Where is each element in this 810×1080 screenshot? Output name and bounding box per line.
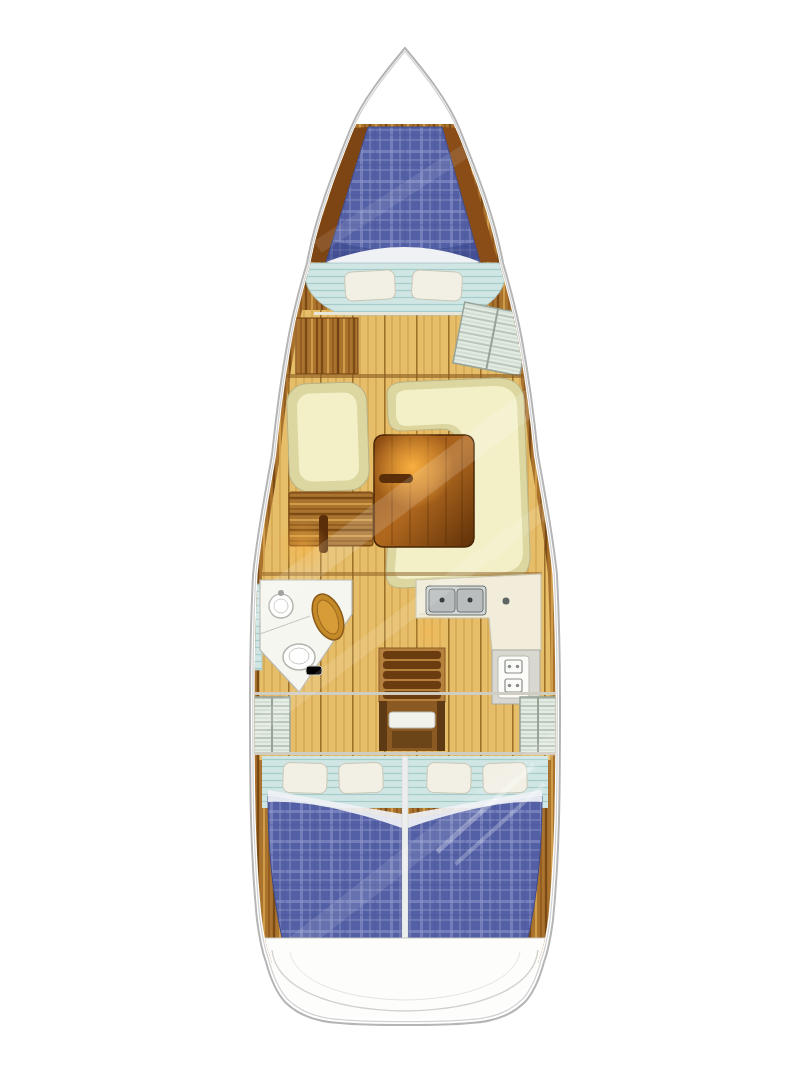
port-glow — [277, 520, 329, 572]
salon-bulkhead — [283, 374, 533, 378]
port-cabinet — [296, 318, 358, 374]
galley-faucet — [503, 598, 510, 605]
ladder-rail — [437, 701, 445, 751]
aft-cabin-bulkhead — [253, 752, 557, 755]
ladder-rail — [379, 701, 387, 751]
ladder-rung — [383, 661, 441, 669]
ladder-rung — [383, 671, 441, 679]
pillow — [411, 270, 462, 302]
ladder-rung — [383, 651, 441, 659]
pillow — [338, 762, 383, 794]
pillow — [282, 762, 327, 794]
lower-step — [392, 731, 432, 748]
boat-floor-plan — [0, 0, 810, 1080]
forward-cabin — [305, 127, 505, 315]
boat-floor-plan-page — [0, 0, 810, 1080]
ladder-rung — [383, 681, 441, 689]
pillow — [344, 270, 395, 302]
port-settee — [286, 382, 370, 493]
sink-drain — [468, 598, 473, 603]
stove — [492, 650, 540, 704]
pillow — [426, 762, 471, 794]
companionway-ladder — [379, 648, 445, 751]
galley-glow — [410, 612, 450, 652]
companionway-step — [389, 712, 435, 728]
